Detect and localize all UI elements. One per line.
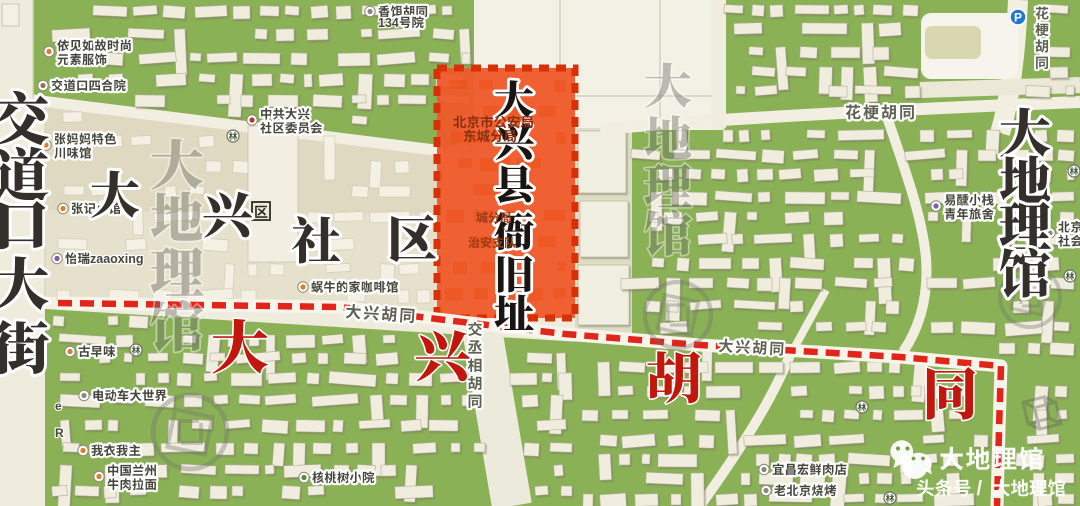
svg-text:P: P: [1014, 11, 1022, 25]
svg-text:/: /: [977, 478, 983, 500]
svg-text:R: R: [55, 426, 64, 440]
svg-text:zaaoxing: zaaoxing: [90, 252, 144, 266]
svg-text:134: 134: [378, 16, 399, 30]
svg-text:e: e: [55, 399, 62, 413]
